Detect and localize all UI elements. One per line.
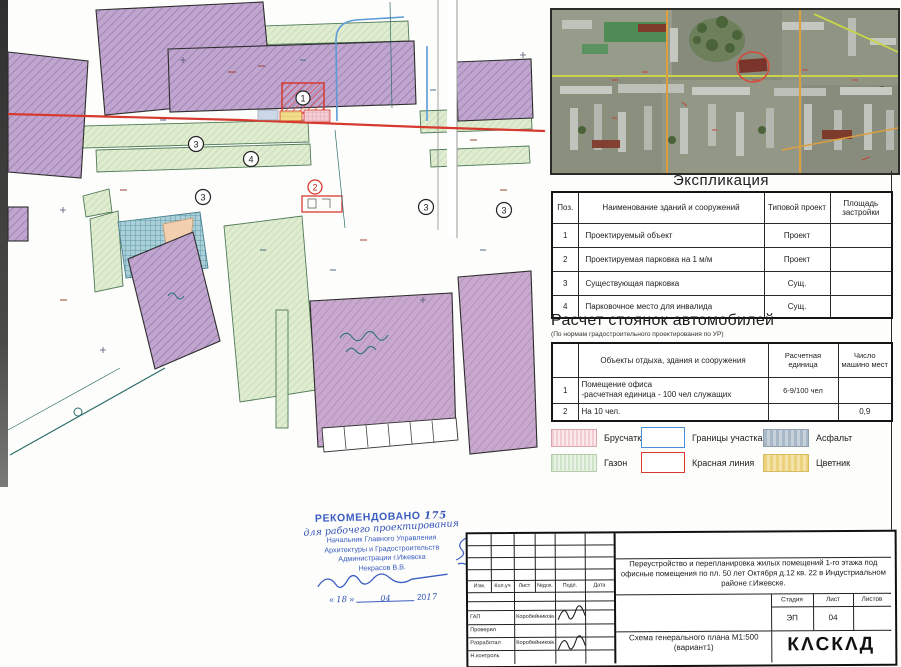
scheme-title-block: Схема генерального плана М1:500 (вариант… [618,632,769,654]
legend-item: Асфальт [763,429,852,447]
table-row: 1 Проектируемый объект Проект [552,223,892,247]
red-line-swatch [641,452,685,473]
new-parking: 2 [302,180,342,212]
parcel-boundary-swatch [641,427,685,448]
staff-role: Разработал [470,640,513,646]
quote-close: » [349,594,354,604]
sheets-label: Листов [853,596,891,603]
parking-table: Объекты отдыха, здания и сооружения Расч… [551,342,893,422]
table-row: 3 Существующая парковка Сущ. [552,271,892,295]
site-plan-map: 1 2 3 3 3 3 4 [0,0,548,492]
project-object: 1 [282,83,324,113]
table-header-row: Поз. Наименование зданий и сооружений Ти… [552,192,892,223]
staff-role: Проверил [470,627,513,633]
staff-role: Н.контроль [470,653,513,659]
paving-swatch [551,429,597,447]
cell-area [830,295,892,318]
legend-item: Газон [551,454,627,472]
cell-name: Проектируемый объект [578,223,764,247]
title-block: Изм. Кол.уч Лист №док. Подп. Дата ГАП Ко… [466,530,898,667]
cell-name-line1: Помещение офиса [582,380,765,390]
cell-name: Помещение офиса -расчетная единица - 100… [578,377,768,403]
legend-item: Брусчатка [551,429,646,447]
scheme-variant: (вариант1) [618,643,769,654]
cell-name: Существующая парковка [578,271,764,295]
rev-col-podp: Подп. [555,583,585,589]
col-header-area: Площадь застройки [830,192,892,223]
flowerbed-swatch [763,454,809,472]
signature [554,600,588,626]
legend-item: Границы участка [641,427,762,448]
svg-text:3: 3 [501,206,506,216]
genplan-sheet: 1 2 3 3 3 3 4 [0,0,901,667]
rev-col-data: Дата [585,582,614,588]
project-title: Переустройство и перепланировка жилых по… [618,558,889,594]
legend-label: Цветник [816,458,850,468]
sheet-value: 04 [813,613,853,622]
marker-2: 2 [312,183,317,193]
scheme-title: Схема генерального плана М1:500 [618,632,769,643]
cell-area [830,247,892,271]
rev-col-koluch: Кол.уч [491,583,514,589]
cell-unit: 6-9/100 чел [768,377,838,403]
cell-pos: 2 [552,247,578,271]
marker-4: 4 [248,155,253,165]
parking-subtitle: (По нормам градостроительного проектиров… [551,331,724,338]
cell-pos: 2 [552,403,578,421]
col-header-unit: Расчетная единица [768,343,838,377]
col-header-project: Типовой проект [764,192,830,223]
cell-unit [768,403,838,421]
legend-label: Границы участка [692,433,762,443]
cell-pos: 3 [552,271,578,295]
cell-project: Проект [764,223,830,247]
lawn-swatch [551,454,597,472]
table-row: 2 Проектируемая парковка на 1 м/м Проект [552,247,892,271]
legend-label: Асфальт [816,433,852,443]
parking-title: Расчет стоянок автомобилей [551,312,774,330]
svg-text:3: 3 [423,203,428,213]
legend-label: Газон [604,458,627,468]
cell-project: Проект [764,247,830,271]
col-header-count: Число машино мест [838,343,892,377]
cell-count: 0,9 [838,403,892,421]
date-year: 17 [426,592,437,602]
stage-value: ЭП [771,613,813,622]
svg-text:3: 3 [193,140,198,150]
asphalt-swatch [763,429,809,447]
quote-open: « [329,594,334,604]
signature [554,630,588,656]
staff-role: ГАП [470,614,513,620]
year-prefix: 20 [417,592,427,602]
col-header-pos [552,343,578,377]
signature [307,569,457,593]
satellite-image [550,8,900,175]
date-day: 18 [336,595,347,605]
legend-label: Красная линия [692,458,754,468]
date-rule: 04 [356,592,414,603]
cell-area [830,271,892,295]
svg-text:3: 3 [200,193,205,203]
col-header-name: Наименование зданий и сооружений [578,192,764,223]
date-month: 04 [380,594,390,603]
marker-1: 1 [300,94,305,104]
table-row: 1 Помещение офиса -расчетная единица - 1… [552,377,892,403]
explication-table: Поз. Наименование зданий и сооружений Ти… [551,191,893,319]
rev-col-list: Лист [514,583,535,589]
col-header-pos: Поз. [552,192,578,223]
cell-pos: 1 [552,377,578,403]
cell-name: Проектируемая парковка на 1 м/м [578,247,764,271]
table-header-row: Объекты отдыха, здания и сооружения Расч… [552,343,892,377]
sheet-label: Лист [813,596,853,603]
table-row: 2 На 10 чел. 0,9 [552,403,892,421]
explication-title: Экспликация [551,172,891,189]
company-logo: КΛСКΛД [773,631,889,660]
satellite-render [552,10,898,173]
rev-col-izm: Изм. [468,583,491,589]
cell-area [830,223,892,247]
stage-label: Стадия [771,596,813,603]
cell-name-line2: -расчетная единица - 100 чел служащих [582,390,765,400]
entrance-strips [258,110,330,122]
rev-col-ndok: №док. [535,583,555,589]
staff-name: Коробейникова [516,614,554,620]
cell-pos: 1 [552,223,578,247]
legend-item: Цветник [763,454,850,472]
scan-seam [447,0,457,238]
col-header-name: Объекты отдыха, здания и сооружения [578,343,768,377]
legend-item: Красная линия [641,452,754,473]
staff-name: Коробейникова [516,640,554,646]
cell-count [838,377,892,403]
cell-name: На 10 чел. [578,403,768,421]
cell-project: Сущ. [764,271,830,295]
